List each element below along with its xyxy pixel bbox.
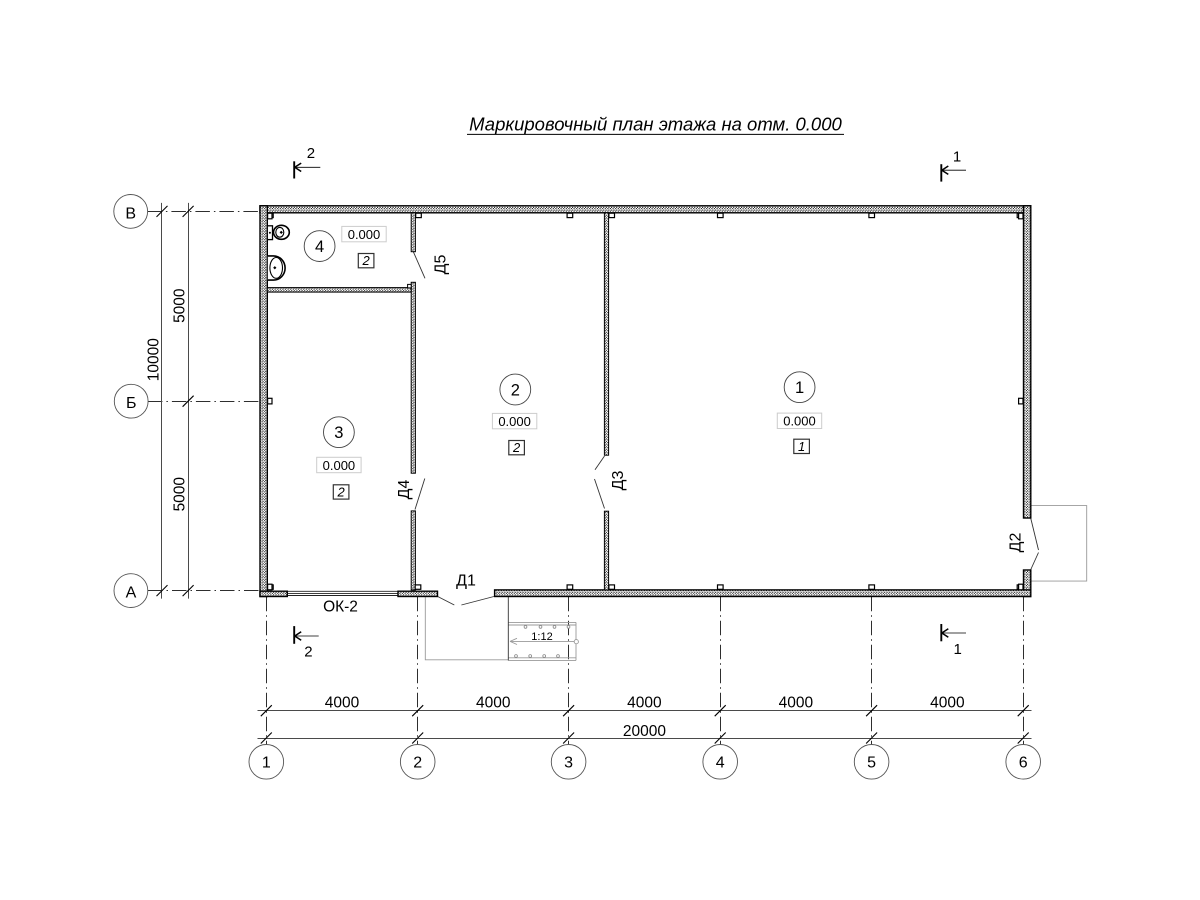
svg-text:2: 2 [361, 253, 370, 268]
svg-text:2: 2 [304, 644, 312, 661]
svg-text:5: 5 [867, 755, 876, 772]
svg-text:1: 1 [954, 641, 962, 658]
svg-text:1: 1 [795, 379, 804, 397]
svg-text:1: 1 [953, 148, 961, 165]
svg-text:20000: 20000 [623, 723, 666, 740]
svg-text:2: 2 [512, 440, 521, 455]
svg-text:4000: 4000 [779, 695, 814, 712]
svg-text:4: 4 [315, 238, 324, 256]
svg-text:Б: Б [126, 395, 137, 412]
svg-text:1:12: 1:12 [531, 631, 552, 643]
svg-text:4000: 4000 [627, 695, 662, 712]
svg-text:В: В [125, 205, 136, 222]
svg-text:6: 6 [1019, 755, 1028, 772]
svg-text:0.000: 0.000 [348, 227, 381, 242]
svg-text:Д4: Д4 [396, 480, 413, 500]
svg-text:А: А [126, 585, 137, 602]
svg-text:Маркировочный план этажа на от: Маркировочный план этажа на отм. 0.000 [469, 113, 842, 134]
svg-text:10000: 10000 [146, 338, 163, 381]
svg-text:Д3: Д3 [610, 471, 627, 491]
svg-text:3: 3 [334, 424, 343, 442]
svg-text:0.000: 0.000 [498, 414, 531, 429]
svg-text:Д2: Д2 [1008, 533, 1025, 553]
svg-text:4000: 4000 [325, 695, 360, 712]
svg-text:4000: 4000 [930, 695, 965, 712]
svg-text:2: 2 [307, 145, 315, 162]
svg-text:4000: 4000 [476, 695, 511, 712]
svg-text:1: 1 [262, 755, 271, 772]
svg-text:5000: 5000 [172, 477, 189, 512]
svg-text:ОК-2: ОК-2 [323, 599, 358, 616]
svg-text:2: 2 [336, 485, 345, 500]
svg-text:0.000: 0.000 [783, 414, 816, 429]
svg-text:3: 3 [564, 755, 573, 772]
svg-text:Д5: Д5 [433, 255, 450, 275]
svg-text:5000: 5000 [172, 288, 189, 323]
svg-text:0.000: 0.000 [323, 458, 356, 473]
svg-text:2: 2 [511, 382, 520, 400]
svg-text:1: 1 [798, 439, 805, 454]
svg-text:Д1: Д1 [456, 573, 476, 590]
svg-text:2: 2 [413, 755, 422, 772]
svg-text:4: 4 [716, 755, 725, 772]
